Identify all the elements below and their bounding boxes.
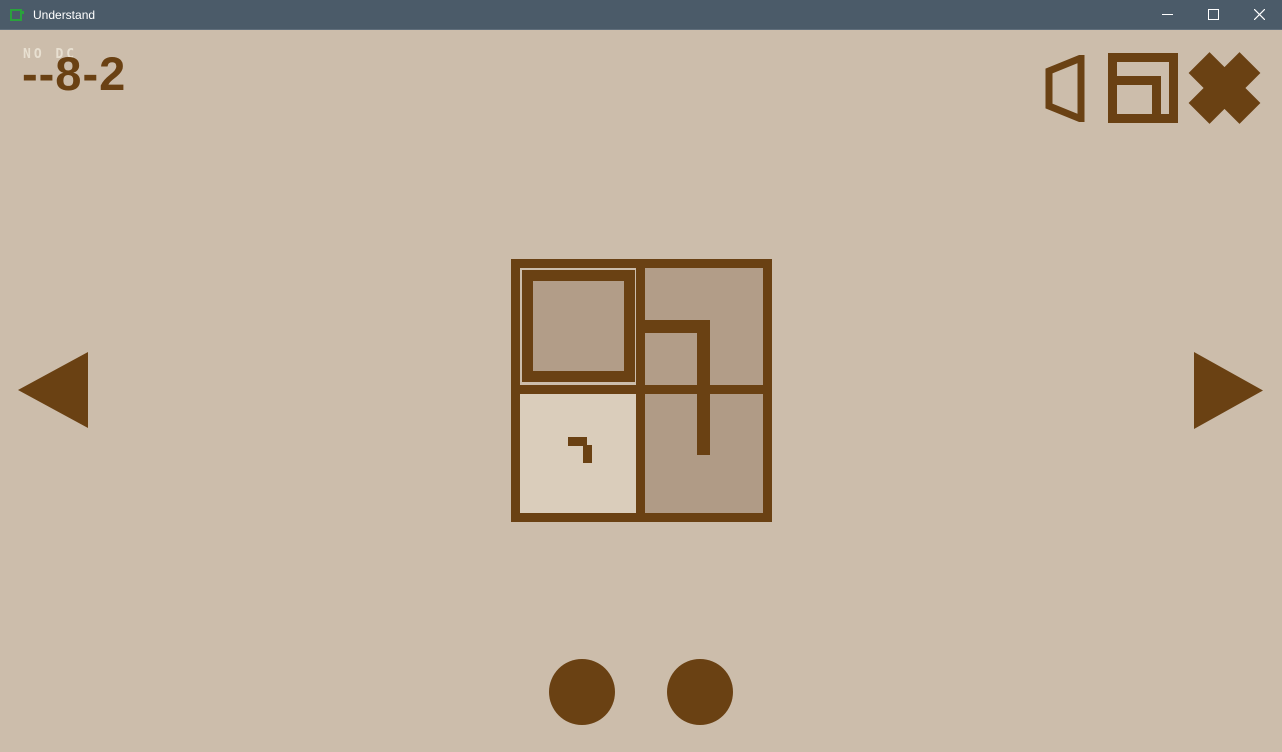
levels-button[interactable] bbox=[1108, 53, 1178, 123]
close-button[interactable] bbox=[1236, 0, 1282, 30]
puzzle-dot[interactable] bbox=[549, 659, 615, 725]
prev-level-arrow[interactable] bbox=[18, 352, 88, 428]
app-window: Understand NO DC --8-2 bbox=[0, 0, 1282, 752]
speaker-icon bbox=[1045, 55, 1085, 122]
minimize-icon bbox=[1162, 9, 1173, 20]
app-icon bbox=[9, 7, 25, 23]
titlebar: Understand bbox=[0, 0, 1282, 30]
window-title: Understand bbox=[33, 8, 1144, 22]
maximize-icon bbox=[1208, 9, 1219, 20]
minimize-button[interactable] bbox=[1144, 0, 1190, 30]
close-icon bbox=[1254, 9, 1265, 20]
level-name: --8-2 bbox=[22, 48, 126, 100]
left-triangle-icon bbox=[18, 352, 88, 428]
exit-button[interactable] bbox=[1188, 52, 1261, 124]
nested-square-icon bbox=[1108, 53, 1178, 123]
game-area: NO DC --8-2 bbox=[0, 30, 1282, 752]
maximize-button[interactable] bbox=[1190, 0, 1236, 30]
cross-icon bbox=[1188, 52, 1261, 124]
next-level-arrow[interactable] bbox=[1194, 352, 1263, 429]
puzzle-pager bbox=[549, 659, 733, 725]
right-triangle-icon bbox=[1194, 352, 1263, 429]
puzzle-dot[interactable] bbox=[667, 659, 733, 725]
sound-button[interactable] bbox=[1045, 55, 1085, 122]
puzzle-board[interactable] bbox=[511, 259, 772, 522]
puzzle-outer-border bbox=[511, 259, 772, 522]
